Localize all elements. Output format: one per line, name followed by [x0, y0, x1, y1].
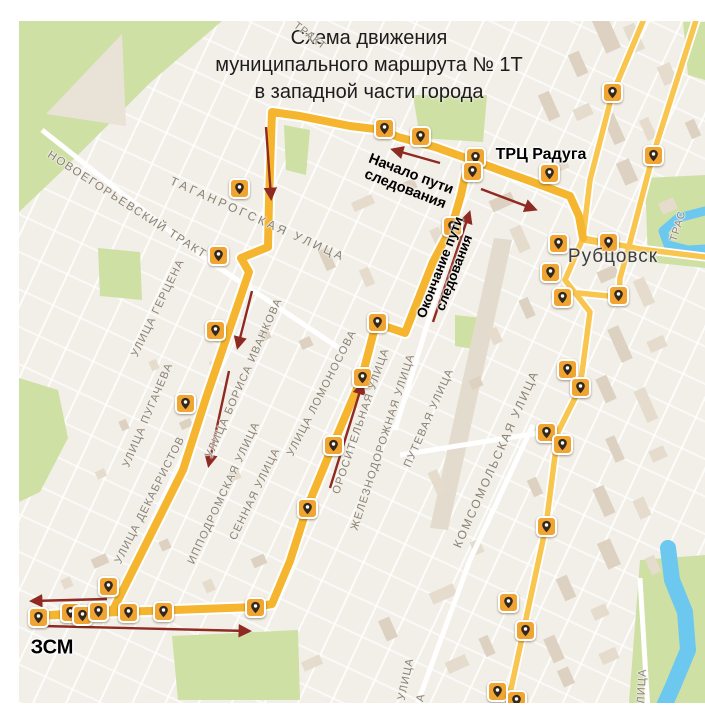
route-casing	[38, 163, 480, 616]
bus-stop-pin	[570, 377, 591, 398]
building	[158, 538, 171, 551]
building	[351, 194, 375, 212]
location-pin-icon	[233, 182, 246, 195]
building	[527, 477, 543, 498]
building	[60, 576, 73, 589]
bus-stop-pin	[552, 287, 573, 308]
bus-stop-pin	[367, 312, 388, 333]
bus-stop-pin	[118, 602, 139, 623]
bus-stop-pin	[498, 592, 519, 613]
building	[557, 666, 575, 687]
location-pin-icon	[510, 694, 523, 704]
location-pin-icon	[540, 426, 553, 439]
location-pin-icon	[92, 605, 105, 618]
building	[298, 336, 313, 350]
building	[91, 553, 110, 569]
bus-stop-pin	[602, 82, 623, 103]
building	[607, 325, 633, 363]
building	[445, 654, 470, 674]
building	[518, 297, 535, 319]
landmark-label: ЗСМ	[31, 637, 74, 660]
city-label: Рубцовск	[568, 246, 658, 268]
location-pin-icon	[122, 606, 135, 619]
bus-stop-pin	[462, 161, 483, 182]
building	[489, 192, 516, 213]
building	[543, 635, 565, 664]
bus-stop-pin	[539, 163, 560, 184]
bus-stop-pin	[229, 178, 250, 199]
building	[597, 538, 621, 569]
green-area	[98, 248, 142, 300]
bus-stop-pin	[98, 576, 119, 597]
landmark-label: ТРЦ Радуга	[496, 146, 587, 164]
building	[646, 335, 667, 353]
location-pin-icon	[466, 165, 479, 178]
location-pin-icon	[179, 397, 192, 410]
location-pin-icon	[491, 685, 504, 698]
bus-stop-pin	[205, 320, 226, 341]
building	[538, 91, 560, 121]
building	[616, 158, 639, 186]
bus-stop-pin	[175, 393, 196, 414]
bus-stop-pin	[374, 118, 395, 139]
building	[632, 496, 651, 519]
building	[572, 103, 593, 121]
location-pin-icon	[102, 580, 115, 593]
bus-stop-pin	[487, 681, 508, 702]
bus-stop-pin	[548, 233, 569, 254]
bus-stop-pin	[540, 262, 561, 283]
location-pin-icon	[356, 371, 369, 384]
bus-stop-pin	[208, 245, 229, 266]
route-map-canvas: Схема движения муниципального маршрута №…	[19, 21, 705, 703]
bus-stop-pin	[88, 601, 109, 622]
building	[301, 654, 323, 671]
building	[685, 119, 701, 140]
location-pin-icon	[552, 237, 565, 250]
building	[202, 578, 216, 593]
street-label: ЦА	[412, 692, 427, 703]
location-pin-icon	[301, 502, 314, 515]
bus-route-line	[38, 163, 480, 616]
location-pin-icon	[157, 605, 170, 618]
location-pin-icon	[544, 266, 557, 279]
building	[359, 267, 375, 288]
location-pin-icon	[371, 316, 384, 329]
building	[251, 554, 268, 569]
bus-stop-pin	[515, 620, 536, 641]
building	[118, 419, 129, 431]
bus-stop-pin	[153, 601, 174, 622]
bus-stop-pin	[323, 435, 344, 456]
building	[598, 647, 619, 665]
building	[478, 635, 495, 657]
location-pin-icon	[502, 596, 515, 609]
building	[378, 617, 398, 642]
location-pin-icon	[556, 291, 569, 304]
building	[95, 468, 107, 479]
bus-stop-pin	[643, 145, 664, 166]
building	[556, 575, 577, 602]
building	[568, 51, 589, 78]
bus-stop-pin	[410, 126, 431, 147]
building	[633, 277, 655, 307]
location-pin-icon	[378, 122, 391, 135]
location-pin-icon	[414, 130, 427, 143]
building	[590, 603, 609, 620]
location-pin-icon	[212, 249, 225, 262]
green-area	[19, 378, 68, 502]
location-pin-icon	[606, 86, 619, 99]
street-label: ЛИЦА	[635, 668, 649, 703]
map-geometry-layer	[19, 21, 705, 703]
location-pin-icon	[76, 609, 89, 622]
building	[595, 375, 617, 404]
building	[592, 485, 615, 517]
bus-stop-pin	[28, 607, 49, 628]
page: { "title": { "line1": "Схема движения", …	[0, 0, 705, 715]
green-area	[284, 125, 310, 175]
location-pin-icon	[32, 611, 45, 624]
green-area	[172, 630, 300, 700]
building	[605, 435, 625, 463]
location-pin-icon	[249, 601, 262, 614]
building	[509, 225, 531, 254]
location-pin-icon	[519, 624, 532, 637]
location-pin-icon	[612, 289, 625, 302]
location-pin-icon	[543, 167, 556, 180]
location-pin-icon	[327, 439, 340, 452]
location-pin-icon	[540, 520, 553, 533]
bus-stop-pin	[245, 597, 266, 618]
location-pin-icon	[209, 324, 222, 337]
bus-stop-pin	[552, 434, 573, 455]
building	[148, 359, 159, 371]
building	[591, 21, 621, 54]
building	[648, 445, 667, 462]
location-pin-icon	[561, 363, 574, 376]
bus-stop-pin	[536, 516, 557, 537]
bus-stop-pin	[608, 285, 629, 306]
building	[634, 387, 659, 423]
bus-stop-pin	[506, 690, 527, 704]
location-pin-icon	[574, 381, 587, 394]
location-pin-icon	[556, 438, 569, 451]
direction-arrow	[43, 626, 248, 631]
bus-stop-pin	[297, 498, 318, 519]
location-pin-icon	[647, 149, 660, 162]
